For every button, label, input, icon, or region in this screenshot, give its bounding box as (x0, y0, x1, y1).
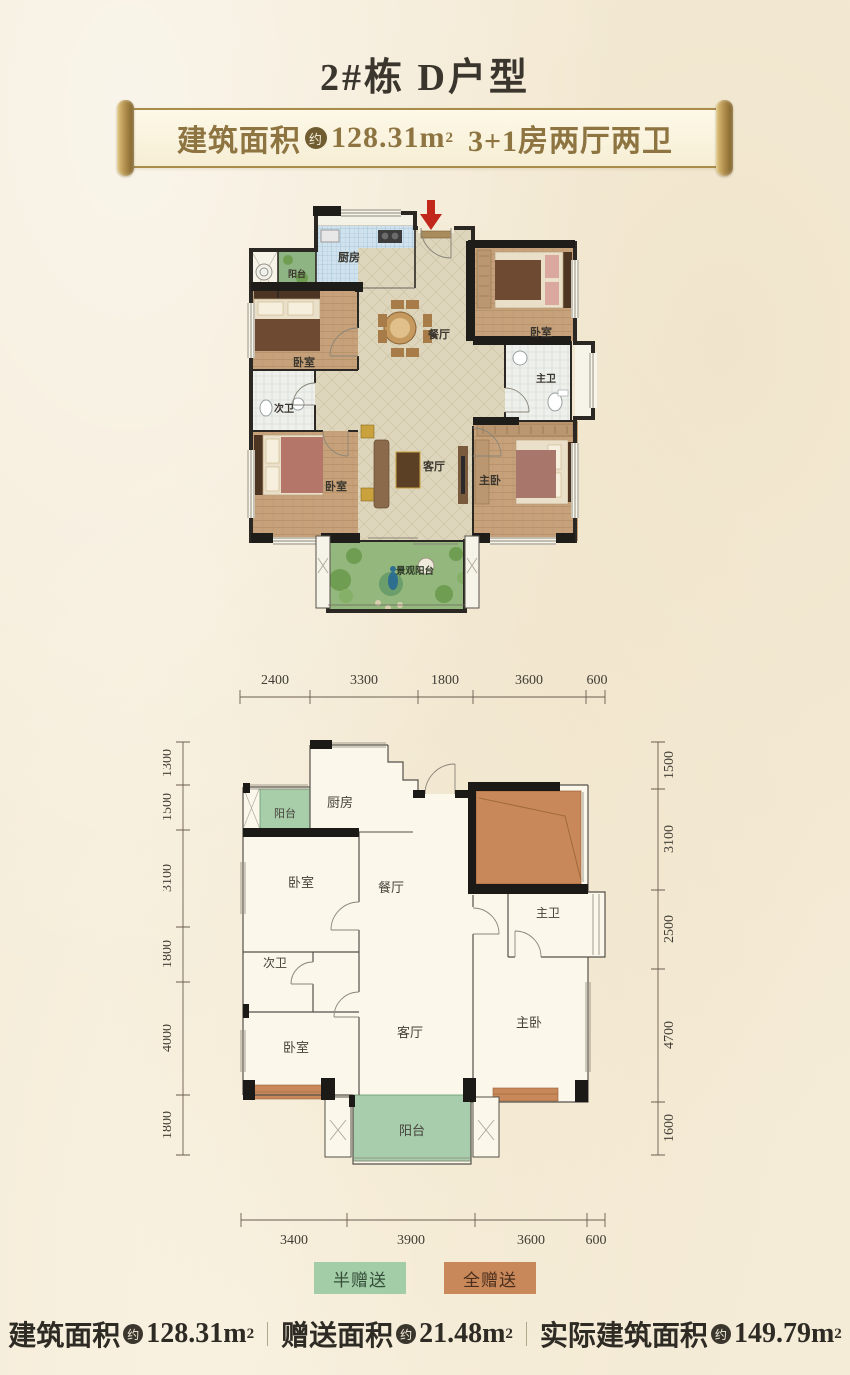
summary-built-value: 128.31m (146, 1318, 246, 1350)
room-label-bedroom-right: 卧室 (530, 325, 552, 339)
dim-left-0: 1300 (163, 749, 175, 777)
room-label-bedroom-bottom: 卧室 (325, 479, 347, 493)
summary-built-area: 建筑面积 约 128.31m 2 (8, 1314, 254, 1354)
summary-gift-area: 赠送面积 约 21.48m 2 (281, 1314, 513, 1354)
approx-mark: 约 (711, 1324, 731, 1344)
dim-top-1: 3300 (350, 673, 378, 688)
room-label-living: 客厅 (422, 459, 445, 473)
area-summary: 建筑面积 约 128.31m 2 赠送面积 约 21.48m 2 实际建筑面积 … (0, 1314, 850, 1354)
room-label-bath-master: 主卫 (536, 372, 556, 385)
room-label-view-balcony: 景观阳台 (395, 565, 435, 577)
dim-bottom-1: 3900 (397, 1233, 425, 1248)
approx-mark: 约 (305, 127, 327, 149)
sch-label-kitchen: 厨房 (327, 795, 353, 810)
legend-full-gift: 全赠送 (444, 1262, 536, 1294)
sch-label-living: 客厅 (397, 1025, 423, 1040)
legend: 半赠送 全赠送 (0, 1262, 850, 1294)
sch-label-balcony-bottom: 阳台 (399, 1123, 425, 1138)
summary-actual-value: 149.79m (734, 1318, 834, 1350)
banner-text: 建筑面积 约 128.31m 2 3+1房两厅两卫 (177, 116, 673, 160)
summary-actual-label: 实际建筑面积 (540, 1314, 708, 1354)
sch-label-bath-second: 次卫 (263, 956, 287, 970)
dim-bottom-0: 3400 (280, 1233, 308, 1248)
banner-area-label: 建筑面积 (177, 116, 301, 160)
summary-actual-area: 实际建筑面积 约 149.79m 2 (540, 1314, 842, 1354)
dim-left-4: 4000 (163, 1024, 175, 1052)
dim-left-3: 1800 (163, 940, 175, 968)
summary-gift-value: 21.48m (419, 1318, 505, 1350)
room-label-kitchen: 厨房 (338, 250, 360, 264)
room-label-bath-second: 次卫 (274, 402, 294, 415)
dim-top-2: 1800 (431, 673, 459, 688)
legend-half-gift: 半赠送 (314, 1262, 406, 1294)
rendered-floor-plan: 阳台 厨房 卧室 次卫 餐厅 卧室 主卫 卧室 客厅 主卧 景观阳台 (228, 188, 632, 620)
sch-label-bath-master: 主卫 (536, 906, 560, 920)
schematic-floor-plan: 阳台 厨房 卧室 次卫 卧室 餐厅 客厅 主卫 主卧 阳台 2400 3300 … (163, 652, 743, 1300)
summary-divider (526, 1322, 527, 1346)
dim-right-0: 1500 (662, 751, 677, 779)
summary-built-label: 建筑面积 (8, 1314, 120, 1354)
sch-label-bedroom-bottom: 卧室 (283, 1040, 309, 1055)
dim-top-3: 3600 (515, 673, 543, 688)
dim-right-2: 2500 (662, 915, 677, 943)
banner-scroll-cap-left (117, 100, 134, 176)
room-label-dining: 餐厅 (427, 327, 450, 341)
room-label-master: 主卧 (479, 473, 501, 487)
dim-left-5: 1800 (163, 1111, 175, 1139)
sch-label-master: 主卧 (516, 1015, 542, 1030)
summary-divider (267, 1322, 268, 1346)
sch-label-bedroom-left: 卧室 (288, 875, 314, 890)
dim-left-2: 3100 (163, 864, 175, 892)
page-title: 2#栋 D户型 (0, 46, 850, 101)
summary-gift-label: 赠送面积 (281, 1314, 393, 1354)
sch-label-balcony-top: 阳台 (274, 806, 296, 820)
sch-label-dining: 餐厅 (378, 880, 404, 895)
area-banner: 建筑面积 约 128.31m 2 3+1房两厅两卫 (126, 108, 724, 168)
dim-top-4: 600 (587, 673, 608, 688)
dim-right-4: 1600 (662, 1114, 677, 1142)
dim-right-1: 3100 (662, 825, 677, 853)
banner-scroll-cap-right (716, 100, 733, 176)
room-label-bedroom-left: 卧室 (293, 355, 315, 369)
approx-mark: 约 (396, 1324, 416, 1344)
dim-bottom-3: 600 (586, 1233, 607, 1248)
banner-area-value: 128.31m (331, 121, 446, 155)
dim-top-0: 2400 (261, 673, 289, 688)
banner-room-layout: 3+1房两厅两卫 (468, 116, 673, 160)
dim-left-1: 1500 (163, 793, 175, 821)
dim-right-3: 4700 (662, 1021, 677, 1049)
room-label-balcony-top: 阳台 (288, 268, 306, 279)
approx-mark: 约 (123, 1324, 143, 1344)
dim-bottom-2: 3600 (517, 1233, 545, 1248)
